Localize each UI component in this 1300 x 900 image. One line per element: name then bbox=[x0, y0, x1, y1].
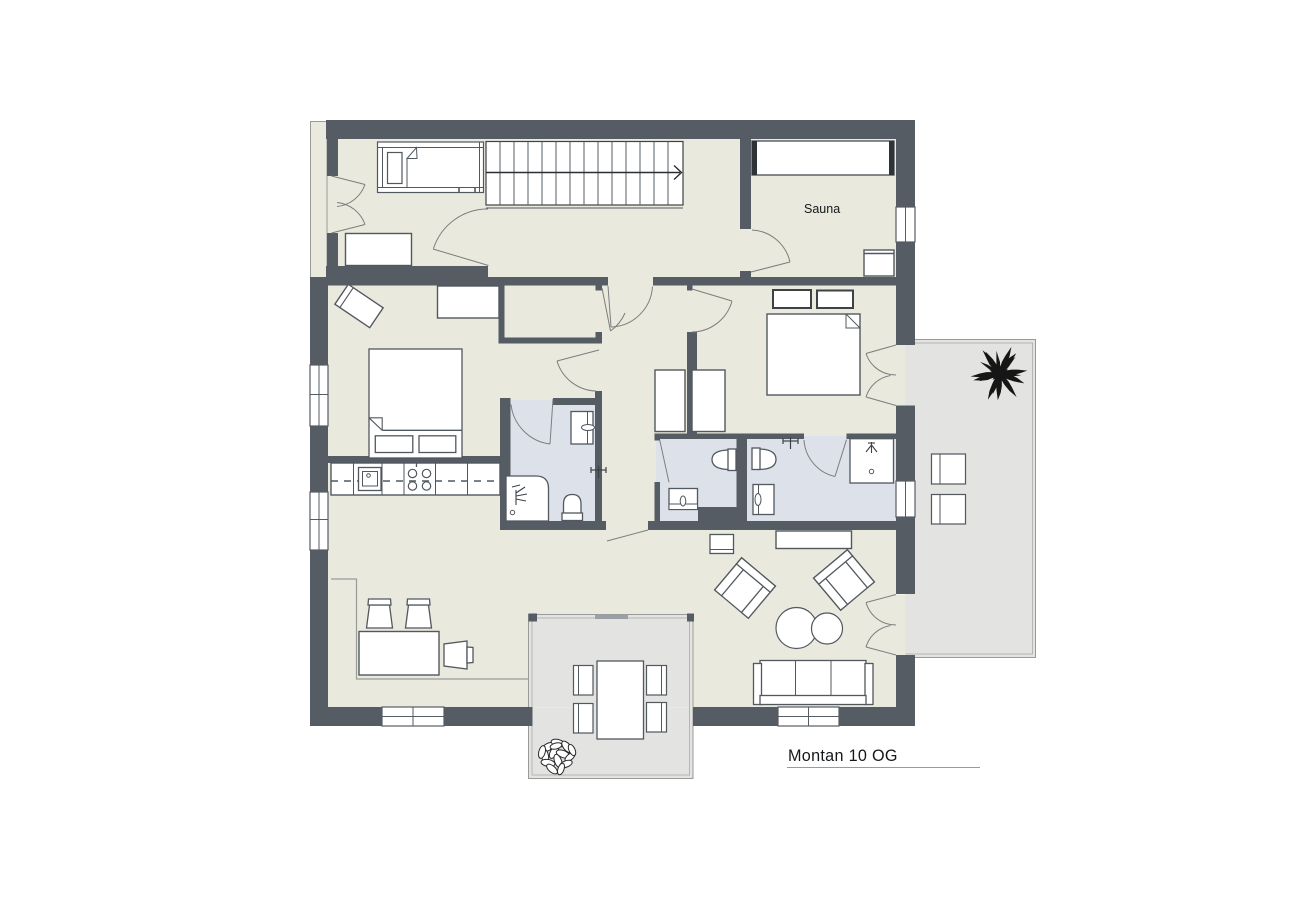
svg-text:Montan 10 OG: Montan 10 OG bbox=[788, 747, 898, 765]
svg-text:Sauna: Sauna bbox=[804, 202, 840, 216]
